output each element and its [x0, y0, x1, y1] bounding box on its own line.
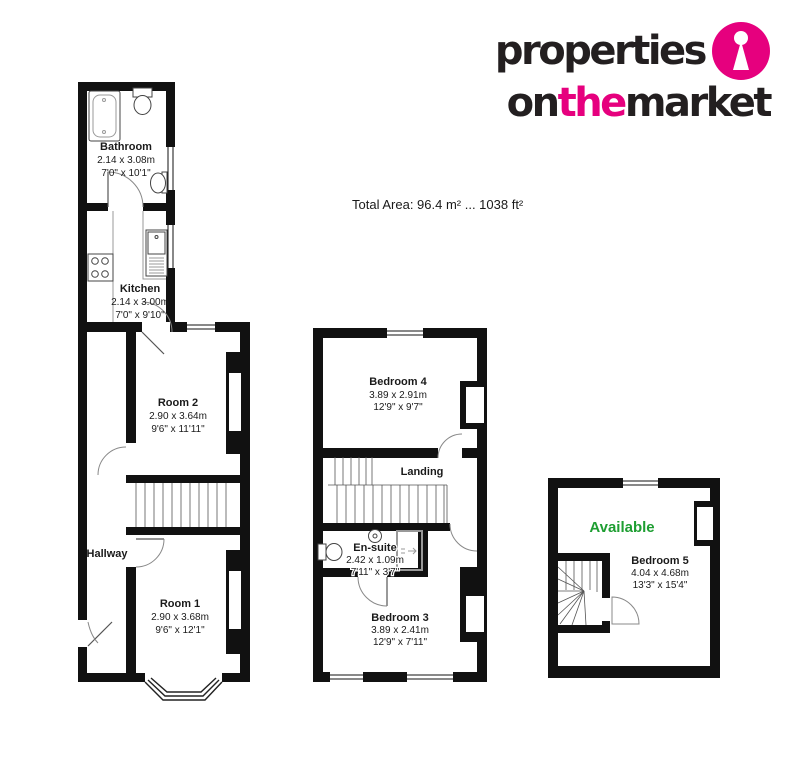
bedroom3-label: Bedroom 3: [371, 612, 428, 624]
front-door-arc: [88, 622, 98, 643]
shower-head-symbol: [369, 530, 382, 543]
bathroom-dims-imperial: 7'0" x 10'1": [101, 168, 151, 179]
kitchen-label: Kitchen: [120, 283, 161, 295]
bedroom3-dims-metric: 3.89 x 2.41m: [371, 625, 429, 636]
bathroom-dims-metric: 2.14 x 3.08m: [97, 155, 155, 166]
stove-hob: [88, 254, 113, 281]
kitchen-dims-metric: 2.14 x 3.00m: [111, 297, 169, 308]
ensuite-dims-metric: 2.42 x 1.09m: [346, 555, 404, 566]
available-badge: Available: [589, 519, 654, 536]
bedroom5-dims-metric: 4.04 x 4.68m: [631, 568, 689, 579]
floorplan-drawing: Bathroom 2.14 x 3.08m 7'0" x 10'1" Kitch…: [0, 0, 800, 763]
bathroom-label: Bathroom: [100, 141, 152, 153]
ensuite-label: En-suite: [353, 542, 396, 554]
first-floor-plan: Bedroom 4 3.89 x 2.91m 12'9" x 9'7" Land…: [313, 328, 487, 682]
room1-label: Room 1: [160, 598, 200, 610]
ground-floor-stairs: [136, 483, 226, 527]
bedroom4-dims-imperial: 12'9" x 9'7": [373, 402, 423, 413]
landing-label: Landing: [401, 466, 444, 478]
bedroom3-dims-imperial: 12'9" x 7'11": [373, 637, 428, 648]
bedroom4-label: Bedroom 4: [369, 376, 427, 388]
room2-dims-imperial: 9'6" x 11'11": [151, 424, 205, 435]
second-floor-door: [612, 597, 639, 624]
room1-dims-metric: 2.90 x 3.68m: [151, 612, 209, 623]
bedroom4-dims-metric: 3.89 x 2.91m: [369, 390, 427, 401]
hallway-label: Hallway: [87, 548, 129, 560]
second-floor-windows: [623, 481, 658, 485]
bedroom5-dims-imperial: 13'3" x 15'4": [633, 580, 688, 591]
toilet: [133, 88, 152, 115]
winder-staircase: [558, 561, 597, 625]
kitchen-sink: [146, 230, 167, 276]
bathroom-sink: [151, 172, 168, 193]
ground-floor-plan: Bathroom 2.14 x 3.08m 7'0" x 10'1" Kitch…: [78, 82, 250, 700]
room2-dims-metric: 2.90 x 3.64m: [149, 411, 207, 422]
first-floor-doors: [358, 434, 477, 606]
kitchen-dims-imperial: 7'0" x 9'10": [115, 310, 165, 321]
bathtub: [89, 91, 120, 141]
ensuite-toilet: [318, 544, 342, 561]
bedroom5-label: Bedroom 5: [631, 555, 688, 567]
floorplan-page: properties onthemarket Total Area: 96.4 …: [0, 0, 800, 763]
ensuite-dims-imperial: 7'11" x 3'7": [351, 567, 400, 578]
room2-label: Room 2: [158, 397, 198, 409]
bay-window: [145, 678, 222, 700]
room1-dims-imperial: 9'6" x 12'1": [155, 625, 205, 636]
ground-floor-windows: [168, 147, 215, 329]
second-floor-plan: Available Bedroom 5 4.04 x 4.68m 13'3" x…: [548, 478, 720, 678]
